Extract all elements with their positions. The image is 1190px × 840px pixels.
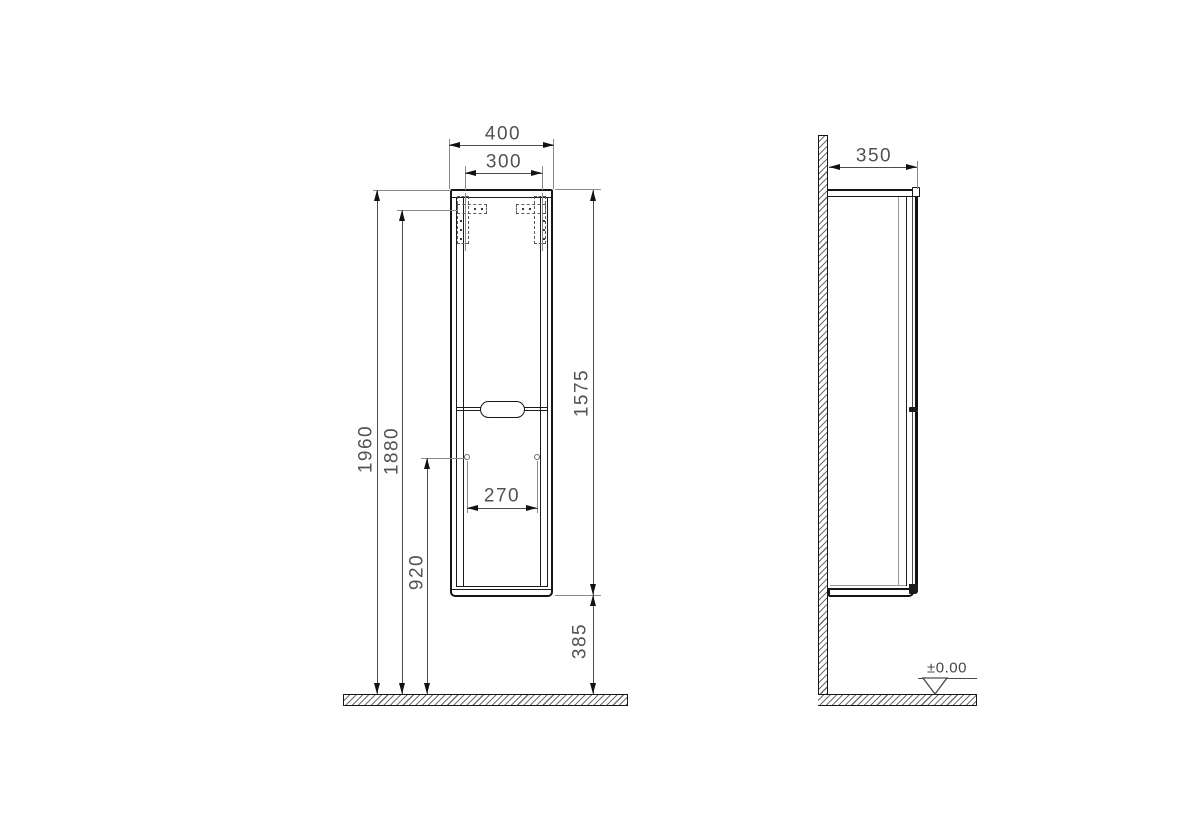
side-door-bottom-cap (909, 584, 918, 594)
arrowhead (531, 170, 542, 176)
dim-line-1960 (377, 190, 378, 694)
dim-350-label: 350 (856, 147, 892, 166)
arrowhead (424, 458, 430, 469)
extension-line (917, 161, 918, 189)
side-inner-bottom-line (830, 585, 906, 586)
side-door-front-upper (912, 197, 918, 408)
arrowhead (543, 142, 554, 148)
arrowhead (829, 164, 840, 170)
arrowhead (590, 190, 596, 201)
bracket-screw-mark (481, 208, 483, 210)
dim-385-label: 385 (571, 623, 590, 659)
arrowhead (374, 190, 380, 201)
front-plinth-line (452, 589, 551, 590)
fixing-hole-left (464, 454, 470, 460)
dim-300-label: 300 (486, 153, 522, 172)
wall-section (818, 135, 828, 706)
side-top-panel (828, 189, 920, 197)
bracket-screw-mark (460, 220, 462, 222)
arrowhead (526, 505, 537, 511)
right-bracket-centerline (542, 193, 543, 251)
dim-line-1575 (593, 190, 594, 595)
side-top-front-lip (912, 187, 920, 197)
extension-line (542, 166, 543, 190)
dim-1880-label: 1880 (383, 427, 402, 475)
side-door-back-line (906, 197, 907, 586)
dim-line-400 (449, 145, 554, 146)
arrowhead (424, 683, 430, 694)
dim-line-350 (829, 167, 917, 168)
door-split-line (524, 407, 548, 408)
datum-triangle-icon (921, 677, 949, 696)
dim-270-label: 270 (484, 487, 520, 506)
arrowhead (590, 683, 596, 694)
extension-line (537, 461, 538, 513)
arrowhead (467, 505, 478, 511)
extension-line (397, 210, 458, 211)
door-handle (480, 401, 525, 418)
dim-400-label: 400 (485, 125, 521, 144)
arrowhead (374, 683, 380, 694)
bracket-screw-mark (543, 220, 545, 222)
side-floor-section (818, 694, 977, 706)
arrowhead (399, 210, 405, 221)
bracket-screw-mark (522, 208, 524, 210)
datum-level-label: ±0.00 (927, 661, 967, 676)
extension-line (373, 190, 451, 191)
side-bottom-panel (828, 588, 914, 597)
bracket-screw-mark (543, 229, 545, 231)
left-bracket-centerline (465, 193, 466, 251)
front-right-inner-wall (547, 197, 548, 587)
front-left-door-edge (463, 198, 464, 586)
front-right-door-edge (540, 198, 541, 586)
technical-drawing: 400 300 270 1960 1880 920 1575 385 350 ±… (0, 0, 1190, 840)
dim-1575-label: 1575 (573, 369, 592, 417)
arrowhead (449, 142, 460, 148)
front-left-inner-wall (456, 197, 457, 587)
side-carcass-line (898, 197, 899, 586)
door-split-line (524, 410, 548, 411)
front-floor-section (343, 694, 628, 706)
arrowhead (399, 683, 405, 694)
arrowhead (590, 595, 596, 606)
bracket-screw-mark (529, 208, 531, 210)
door-split-line (456, 407, 481, 408)
bracket-screw-mark (474, 208, 476, 210)
front-inner-bottom-line (456, 586, 548, 587)
arrowhead (465, 170, 476, 176)
fixing-hole-right (534, 454, 540, 460)
arrowhead (906, 164, 917, 170)
bracket-screw-mark (543, 238, 545, 240)
side-door-front-lower (912, 412, 918, 589)
dim-line-385 (593, 595, 594, 694)
bracket-screw-mark (460, 238, 462, 240)
dim-1960-label: 1960 (357, 425, 376, 473)
arrowhead (590, 584, 596, 595)
door-split-line (456, 410, 481, 411)
bracket-screw-mark (460, 229, 462, 231)
dim-920-label: 920 (408, 554, 427, 590)
